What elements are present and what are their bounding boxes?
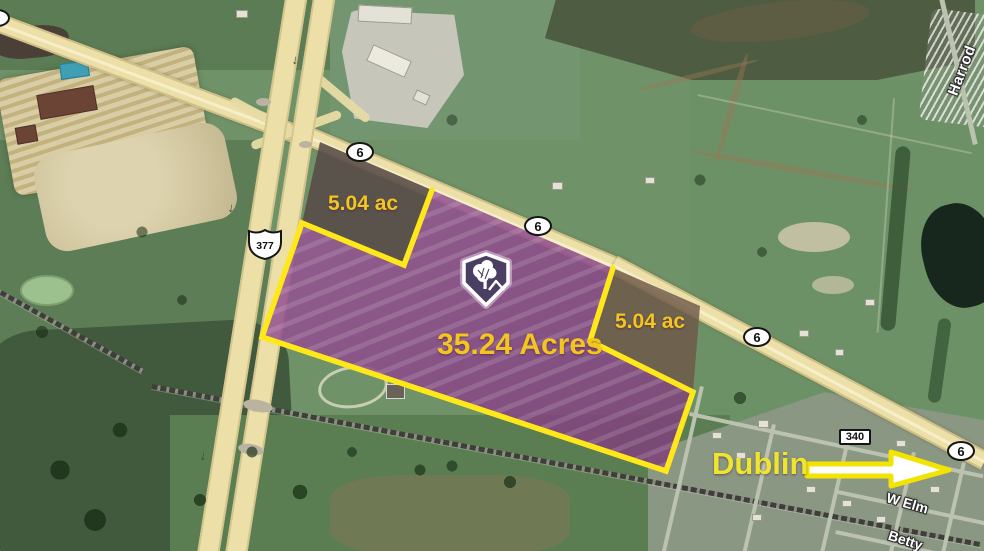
building [358,5,413,25]
house [799,330,809,337]
house [876,516,886,523]
route-6-shield-label: 6 [356,146,363,159]
route-6-shield: 6 [743,327,771,347]
barn-roof [15,124,39,144]
tree-shield-logo-icon [464,254,508,305]
notch-top-label: 5.04 ac [328,192,398,216]
ramp-gore [299,141,312,148]
acreage-label: 35.24 Acres [437,328,603,362]
house [896,440,906,447]
caliche-patch [812,276,854,294]
house [906,468,916,475]
route-6-shield-label: 6 [957,445,964,458]
route-6-shield-label: 6 [534,220,541,233]
route-340-shield: 340 [839,429,871,445]
house [752,514,762,521]
house [842,500,852,507]
route-6-shield: 6 [346,142,374,162]
route-340-shield-label: 340 [846,431,864,443]
house [758,420,769,428]
house [552,182,563,190]
pond [20,275,74,306]
house [712,432,722,439]
field-patch-brown [330,475,570,551]
aerial-map: ↓ ↓ ↓ [0,0,984,551]
house [835,349,844,356]
farm-building [386,384,405,399]
town-label: Dublin [712,446,808,482]
route-6-shield: 6 [947,441,975,461]
notch-right-label: 5.04 ac [615,310,685,334]
house [236,10,248,18]
house [930,486,940,493]
house [806,486,816,493]
house [645,177,655,184]
route-6-shield-label: 6 [753,331,760,344]
route-6-shield: 6 [524,216,552,236]
driveway-loop [315,361,390,412]
ramp-gore [256,98,271,106]
caliche-patch [778,222,850,252]
house [865,299,875,306]
